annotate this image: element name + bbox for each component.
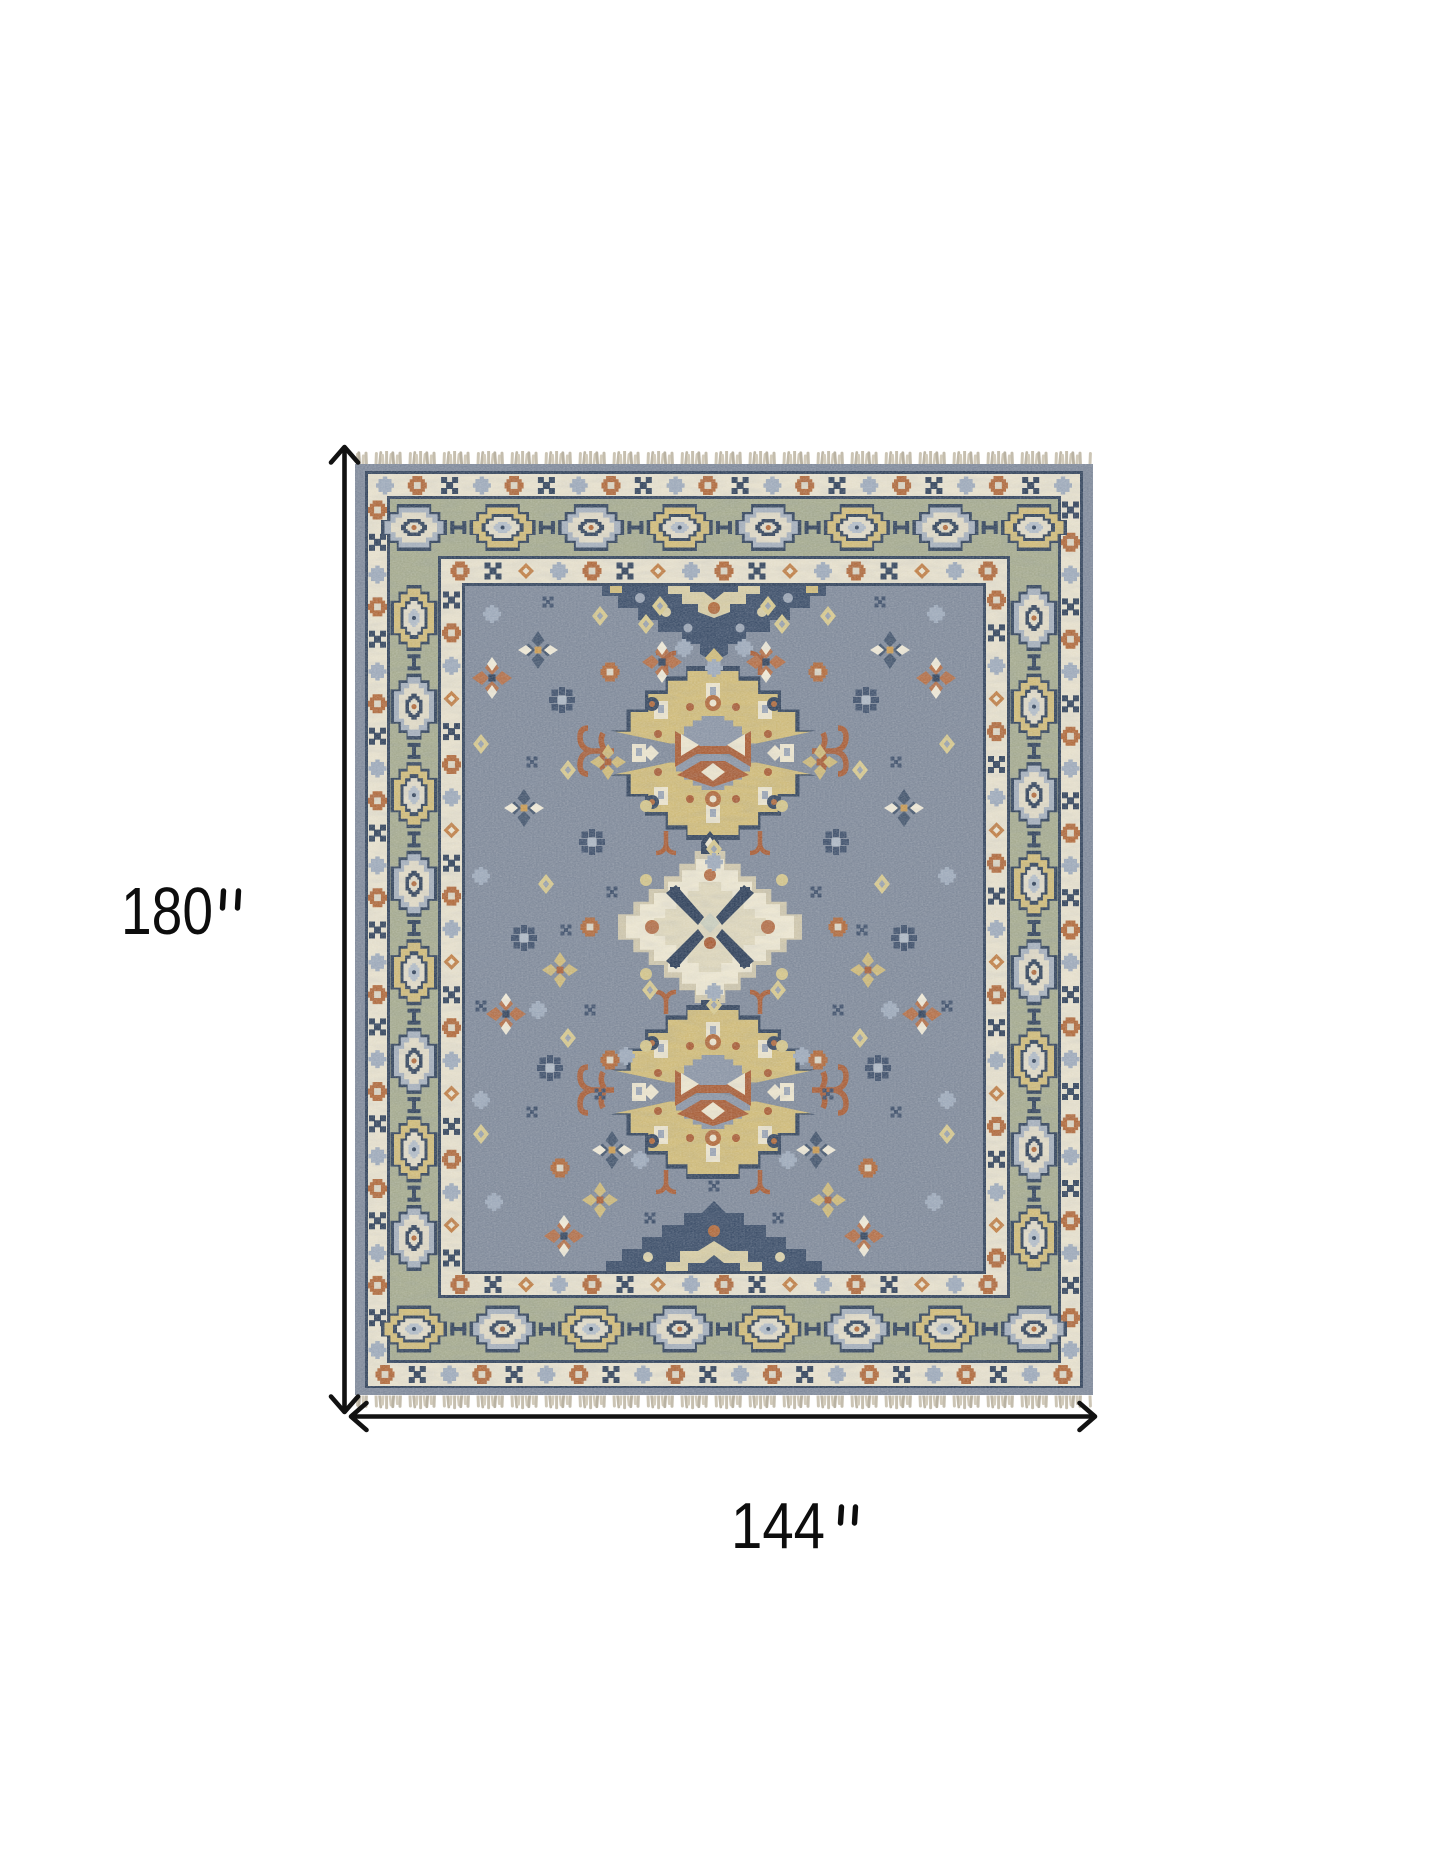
svg-text:144: 144 — [731, 1490, 825, 1562]
svg-text:180: 180 — [121, 875, 213, 949]
